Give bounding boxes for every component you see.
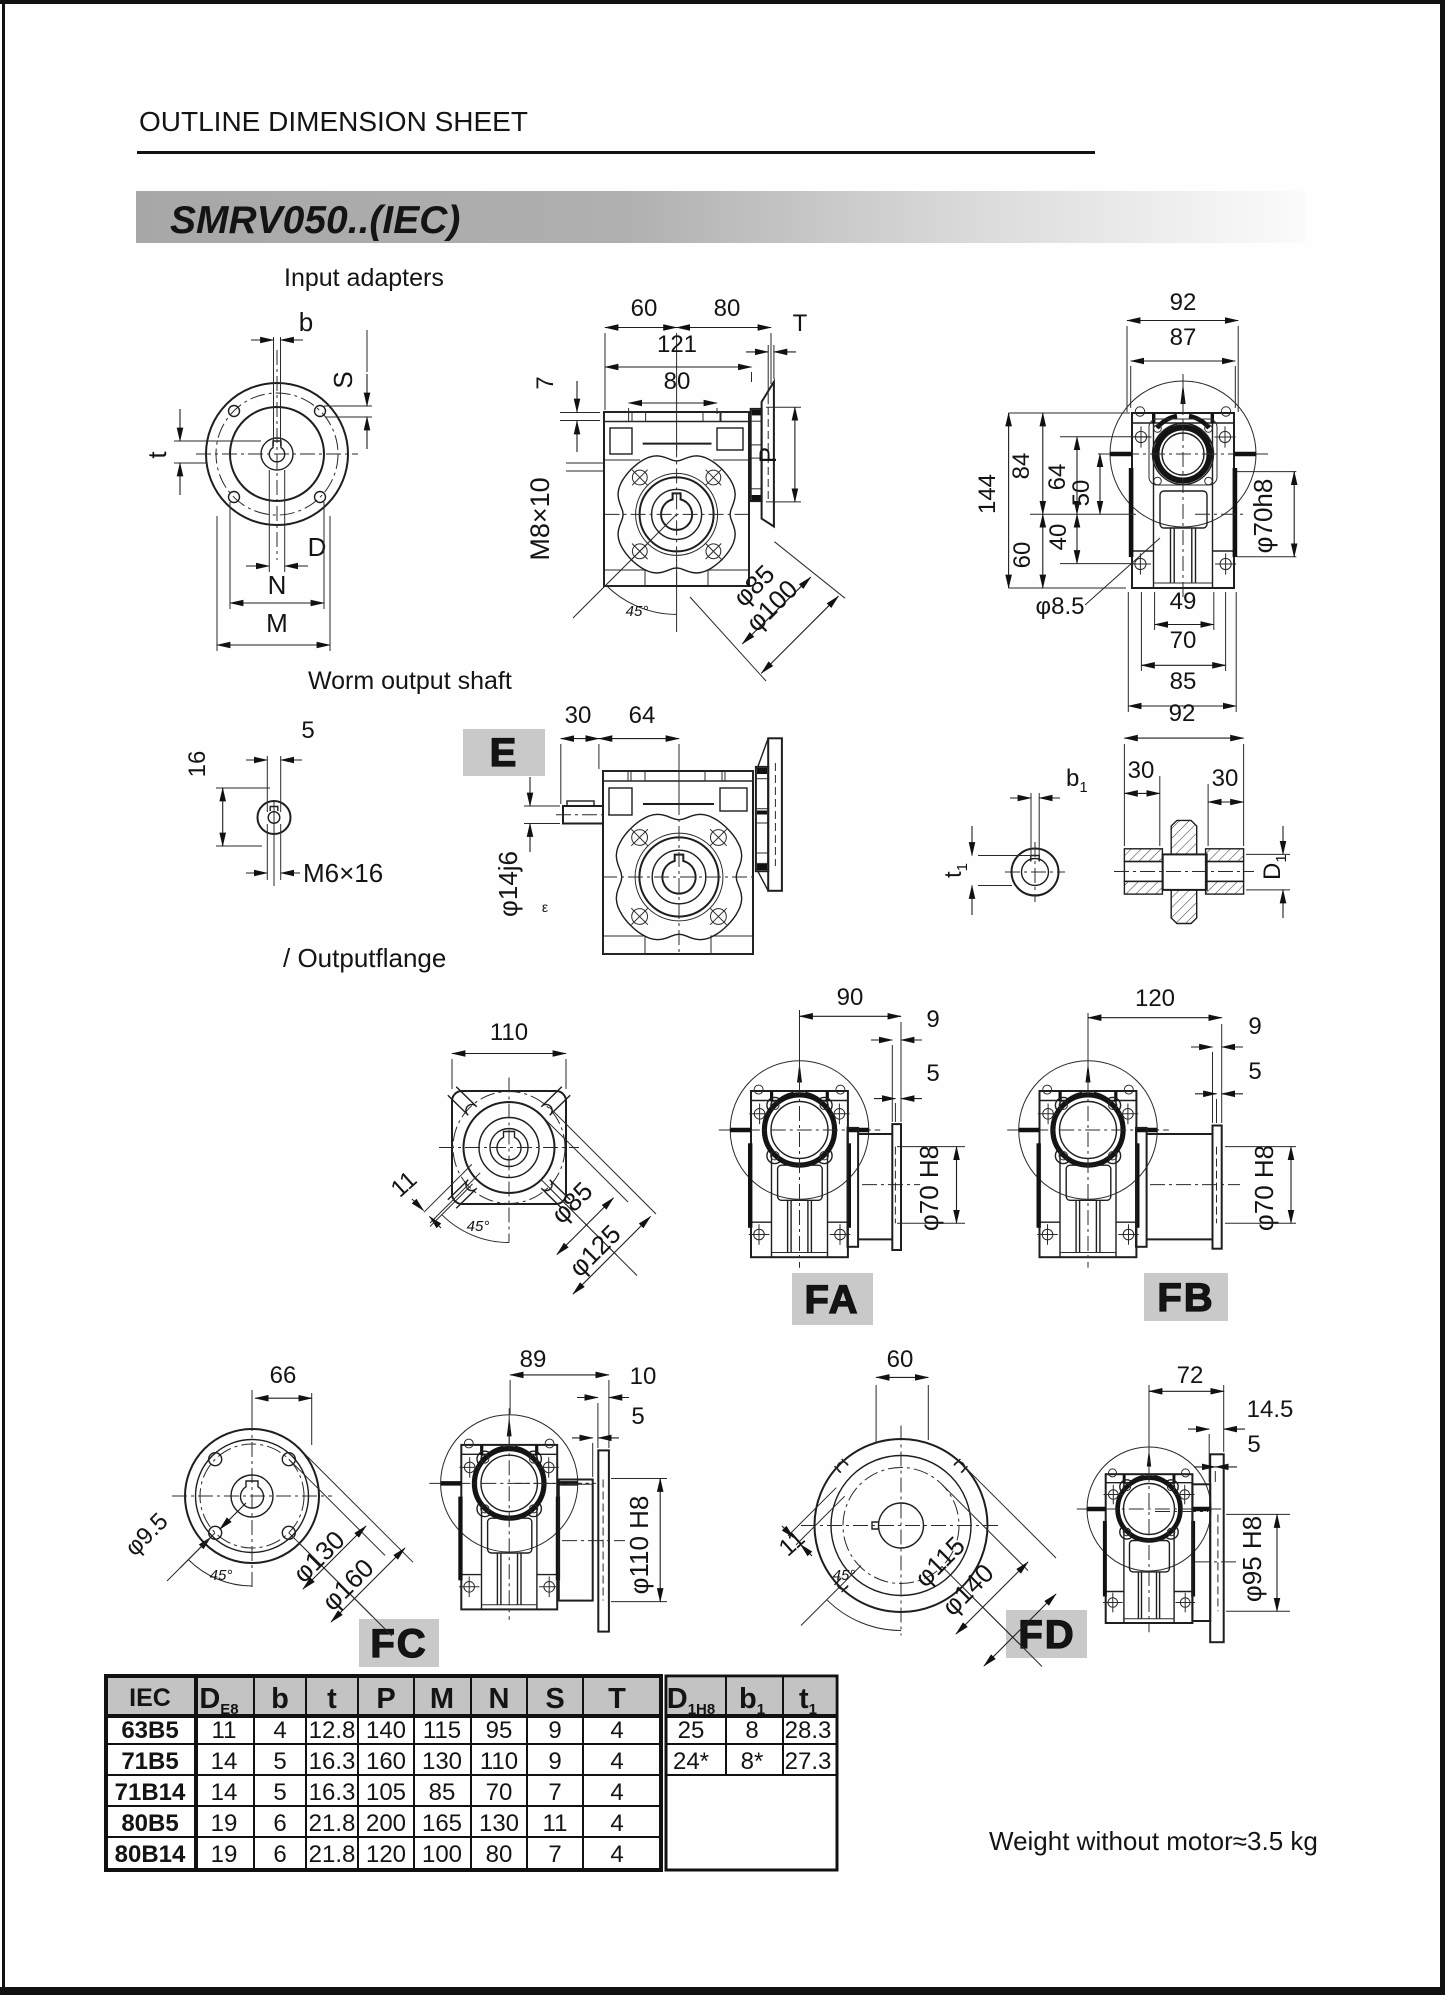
svg-text:19: 19 [211, 1841, 238, 1868]
svg-text:14.5: 14.5 [1247, 1396, 1294, 1423]
svg-text:9: 9 [1248, 1013, 1261, 1040]
svg-text:28.3: 28.3 [785, 1717, 832, 1744]
svg-text:121: 121 [657, 331, 697, 358]
svg-text:80: 80 [664, 368, 691, 395]
svg-text:5: 5 [1247, 1431, 1260, 1458]
svg-text:FB: FB [1157, 1276, 1214, 1320]
svg-text:92: 92 [1169, 700, 1196, 727]
svg-text:21.8: 21.8 [309, 1841, 356, 1868]
svg-text:12.8: 12.8 [309, 1717, 356, 1744]
svg-text:16: 16 [184, 751, 211, 778]
svg-text:t: t [142, 451, 172, 459]
svg-text:95: 95 [486, 1717, 513, 1744]
svg-text:25: 25 [678, 1717, 705, 1744]
svg-text:45°: 45° [467, 1218, 490, 1235]
svg-text:T: T [793, 310, 808, 337]
svg-text:45°: 45° [626, 603, 649, 620]
svg-text:4: 4 [610, 1779, 623, 1806]
svg-text:64: 64 [1044, 464, 1071, 491]
svg-text:S: S [545, 1683, 564, 1715]
svg-text:80: 80 [714, 295, 741, 322]
svg-text:16.3: 16.3 [309, 1748, 356, 1775]
svg-text:85: 85 [429, 1779, 456, 1806]
svg-text:11: 11 [543, 1810, 568, 1837]
svg-text:165: 165 [422, 1810, 462, 1837]
svg-text:7: 7 [548, 1841, 561, 1868]
svg-text:4: 4 [273, 1717, 286, 1744]
svg-text:70: 70 [486, 1779, 513, 1806]
svg-text:84: 84 [1008, 453, 1035, 480]
svg-text:60: 60 [1009, 542, 1036, 569]
svg-text:49: 49 [1170, 588, 1197, 615]
svg-text:10: 10 [630, 1363, 657, 1390]
svg-text:5: 5 [273, 1779, 286, 1806]
svg-text:N: N [489, 1683, 510, 1715]
svg-text:P: P [755, 447, 782, 463]
svg-text:30: 30 [1212, 765, 1239, 792]
svg-text:5: 5 [301, 717, 314, 744]
svg-text:7: 7 [548, 1779, 561, 1806]
svg-text:50: 50 [1068, 480, 1095, 507]
svg-text:b: b [271, 1683, 289, 1715]
svg-text:30: 30 [1128, 757, 1155, 784]
svg-text:89: 89 [520, 1346, 547, 1373]
svg-text:71B14: 71B14 [115, 1779, 186, 1806]
svg-text:11: 11 [212, 1717, 237, 1744]
svg-text:S: S [328, 371, 358, 388]
svg-text:60: 60 [887, 1346, 914, 1373]
svg-text:14: 14 [211, 1779, 238, 1806]
svg-text:8: 8 [745, 1717, 758, 1744]
svg-text:144: 144 [974, 474, 1001, 514]
svg-text:60: 60 [631, 295, 658, 322]
svg-text:8*: 8* [741, 1748, 764, 1775]
svg-text:115: 115 [423, 1717, 461, 1744]
svg-text:110: 110 [480, 1748, 518, 1775]
svg-text:IEC: IEC [129, 1684, 171, 1712]
svg-text:80: 80 [486, 1841, 513, 1868]
svg-text:63B5: 63B5 [121, 1717, 178, 1744]
svg-text:80B14: 80B14 [115, 1841, 186, 1868]
svg-text:SMRV050..(IEC): SMRV050..(IEC) [170, 199, 460, 242]
svg-text:t: t [327, 1683, 337, 1715]
svg-text:24*: 24* [673, 1748, 709, 1775]
svg-text:9: 9 [548, 1748, 561, 1775]
svg-text:FA: FA [804, 1278, 859, 1322]
svg-text:FD: FD [1018, 1613, 1075, 1657]
svg-text:φ70h8: φ70h8 [1248, 479, 1278, 554]
svg-text:OUTLINE DIMENSION SHEET: OUTLINE DIMENSION SHEET [139, 106, 528, 137]
svg-text:φ110 H8: φ110 H8 [624, 1496, 654, 1595]
svg-text:9: 9 [926, 1006, 939, 1033]
svg-text:Worm output shaft: Worm output shaft [308, 667, 512, 695]
svg-text:200: 200 [366, 1810, 406, 1837]
svg-text:4: 4 [610, 1810, 623, 1837]
svg-text:120: 120 [366, 1841, 406, 1868]
svg-text:90: 90 [837, 984, 864, 1011]
svg-text:M8×10: M8×10 [525, 477, 555, 560]
svg-text:40: 40 [1045, 524, 1072, 551]
svg-text:100: 100 [422, 1841, 462, 1868]
svg-text:E: E [490, 731, 519, 775]
svg-text:130: 130 [479, 1810, 519, 1837]
svg-text:45°: 45° [210, 1567, 233, 1584]
svg-text:P: P [376, 1683, 395, 1715]
svg-text:M: M [266, 608, 288, 638]
svg-text:Input adapters: Input adapters [284, 264, 444, 292]
svg-text:27.3: 27.3 [785, 1748, 832, 1775]
svg-text:5: 5 [273, 1748, 286, 1775]
svg-text:Weight without motor≈3.5 kg: Weight without motor≈3.5 kg [989, 1826, 1318, 1856]
svg-text:87: 87 [1170, 324, 1197, 351]
svg-text:4: 4 [610, 1841, 623, 1868]
svg-text:64: 64 [629, 702, 656, 729]
svg-text:φ95 H8: φ95 H8 [1237, 1516, 1267, 1602]
svg-text:45°: 45° [833, 1567, 856, 1584]
svg-text:M6×16: M6×16 [303, 858, 383, 888]
svg-text:120: 120 [1135, 985, 1175, 1012]
svg-text:6: 6 [273, 1841, 286, 1868]
svg-text:14: 14 [211, 1748, 238, 1775]
svg-text:16.3: 16.3 [309, 1779, 356, 1806]
svg-text:130: 130 [422, 1748, 462, 1775]
svg-text:70: 70 [1170, 627, 1197, 654]
svg-text:FC: FC [370, 1622, 427, 1666]
svg-text:/ Outputflange: / Outputflange [283, 943, 446, 973]
svg-text:160: 160 [366, 1748, 406, 1775]
svg-text:φ14j6: φ14j6 [493, 851, 523, 917]
svg-text:140: 140 [366, 1717, 406, 1744]
svg-text:φ8.5: φ8.5 [1036, 593, 1085, 620]
svg-text:9: 9 [548, 1717, 561, 1744]
svg-text:φ70 H8: φ70 H8 [914, 1145, 944, 1231]
svg-text:6: 6 [273, 1810, 286, 1837]
svg-text:T: T [608, 1683, 626, 1715]
svg-text:66: 66 [270, 1362, 297, 1389]
svg-text:72: 72 [1177, 1362, 1204, 1389]
svg-text:71B5: 71B5 [121, 1748, 178, 1775]
svg-text:M: M [430, 1683, 454, 1715]
svg-text:b: b [299, 307, 313, 337]
svg-text:5: 5 [1248, 1058, 1261, 1085]
svg-text:N: N [268, 570, 287, 600]
svg-text:110: 110 [490, 1019, 528, 1046]
svg-text:85: 85 [1170, 668, 1197, 695]
svg-text:105: 105 [366, 1779, 406, 1806]
svg-text:21.8: 21.8 [309, 1810, 356, 1837]
svg-text:φ70 H8: φ70 H8 [1249, 1145, 1279, 1231]
svg-text:4: 4 [610, 1717, 623, 1744]
svg-text:92: 92 [1170, 289, 1197, 316]
svg-text:5: 5 [631, 1403, 644, 1430]
svg-text:19: 19 [211, 1810, 238, 1837]
svg-text:ε: ε [542, 899, 548, 915]
svg-text:80B5: 80B5 [121, 1810, 178, 1837]
svg-text:30: 30 [565, 702, 592, 729]
svg-text:5: 5 [926, 1060, 939, 1087]
svg-text:7: 7 [532, 376, 559, 389]
svg-text:4: 4 [610, 1748, 623, 1775]
